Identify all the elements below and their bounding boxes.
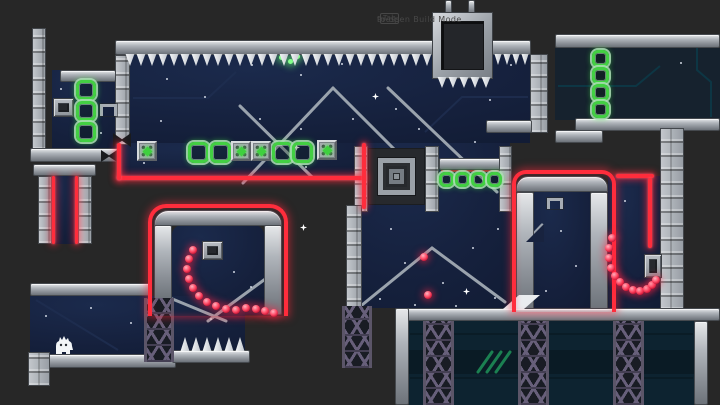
right-wall-column (660, 128, 684, 310)
mid-platform (439, 158, 503, 170)
mid-ring-row (455, 172, 470, 187)
star (455, 305, 457, 307)
shaft-cap (33, 164, 96, 176)
star (143, 162, 145, 164)
shaft-laser-left (52, 176, 55, 244)
left-orb-arc (242, 304, 250, 312)
right-room-ring-chain (592, 101, 609, 118)
star (472, 247, 474, 249)
star (352, 118, 354, 120)
laser-vertical (362, 143, 366, 209)
star (204, 96, 206, 98)
top-room-ring-row (210, 142, 231, 163)
star (390, 228, 392, 230)
left-orb-arc (185, 275, 193, 283)
bottom-right-left-wall (395, 308, 409, 405)
star (510, 64, 512, 66)
game-viewport: PressTabto open Build Mode (0, 0, 720, 405)
star (259, 118, 261, 120)
laser-vertical (648, 178, 652, 248)
shaft-column-right (78, 176, 92, 244)
left-orb-arc (232, 306, 240, 314)
star (45, 315, 47, 317)
right-orb-arc (605, 254, 613, 262)
star (160, 120, 162, 122)
crystal-block (251, 141, 271, 161)
star (300, 74, 302, 76)
red-orb (420, 253, 428, 261)
star (300, 128, 302, 130)
shaft-laser-right (75, 176, 78, 244)
star (474, 141, 476, 143)
laser-horizontal (117, 176, 366, 180)
star (130, 322, 132, 324)
bottom-left-ledge (30, 283, 150, 296)
star (341, 63, 343, 65)
alcove-ring-chain (76, 122, 96, 142)
left-wall-strip (32, 28, 46, 150)
crystal-block (137, 141, 157, 161)
right-room-ring-chain (592, 67, 609, 84)
floor-end-cap (28, 352, 50, 386)
star (680, 62, 682, 64)
arch-laser-outline (148, 204, 288, 316)
doorway-laser-outline (512, 170, 616, 312)
top-room-right-column (530, 54, 548, 133)
shaft-column-left (38, 176, 52, 244)
emblem-block (368, 148, 425, 205)
emblem-right-column (425, 146, 439, 212)
star (414, 304, 416, 306)
hud-hint: PressTabto open Build Mode (287, 13, 467, 26)
star (489, 99, 491, 101)
red-orb (424, 291, 432, 299)
left-orb-arc (212, 302, 220, 310)
mid-ring-row (487, 172, 502, 187)
star-sparkle (300, 224, 307, 231)
top-room-left-wall (115, 55, 130, 145)
top-right-room (555, 48, 720, 120)
right-orb-arc (607, 264, 615, 272)
left-orb-arc (222, 305, 230, 313)
pipe-bracket (100, 104, 117, 116)
star (624, 200, 626, 202)
player-character (52, 334, 76, 356)
left-orb-arc (185, 255, 193, 263)
star (395, 108, 397, 110)
central-room-left-wall (346, 205, 362, 315)
left-orb-arc (252, 305, 260, 313)
left-orb-arc (195, 292, 203, 300)
truss-tower (613, 321, 644, 405)
right-orb-arc (652, 276, 660, 284)
right-room-ring-chain (592, 50, 609, 67)
machine-block (53, 98, 74, 117)
alcove-ring-chain (76, 80, 96, 100)
right-room-step (555, 130, 603, 143)
truss-tower (518, 321, 549, 405)
shaft-interior (55, 176, 75, 244)
crystal-block (317, 140, 337, 160)
right-room-ring-chain (592, 84, 609, 101)
star (90, 307, 92, 309)
top-room-ring-row (272, 142, 293, 163)
orb-socket (644, 254, 662, 278)
crusher-inner (441, 21, 484, 70)
mid-ring-row (439, 172, 454, 187)
bottom-right-right-wall (694, 321, 708, 405)
top-room-ring-row (292, 142, 313, 163)
star (442, 282, 444, 284)
emblem-dot (394, 174, 399, 179)
right-orb-arc (608, 234, 616, 242)
spike-ledge (172, 350, 250, 363)
star (100, 132, 102, 134)
star (305, 166, 307, 168)
top-room-ring-row (188, 142, 209, 163)
star (494, 297, 496, 299)
star (166, 78, 168, 80)
star (404, 262, 406, 264)
left-orb-arc (189, 246, 197, 254)
truss-tower (342, 306, 372, 368)
star (210, 318, 212, 320)
left-orb-arc (270, 309, 278, 317)
ceiling-bar-right (555, 34, 720, 48)
right-orb-arc (605, 244, 613, 252)
alcove-ring-chain (76, 101, 96, 121)
star (418, 128, 420, 130)
truss-tower (423, 321, 454, 405)
green-glow (288, 59, 293, 64)
left-orb-arc (203, 298, 211, 306)
crystal-block (231, 141, 251, 161)
mid-ring-row (471, 172, 486, 187)
ledge-right-of-crusher (486, 120, 532, 133)
hint-suffix: to open Build Mode (377, 13, 462, 26)
left-orb-arc (183, 265, 191, 273)
star (497, 228, 499, 230)
laser-vertical (117, 143, 121, 180)
star (60, 88, 62, 90)
left-orb-arc (261, 307, 269, 315)
star (379, 298, 381, 300)
left-orb-arc (189, 284, 197, 292)
